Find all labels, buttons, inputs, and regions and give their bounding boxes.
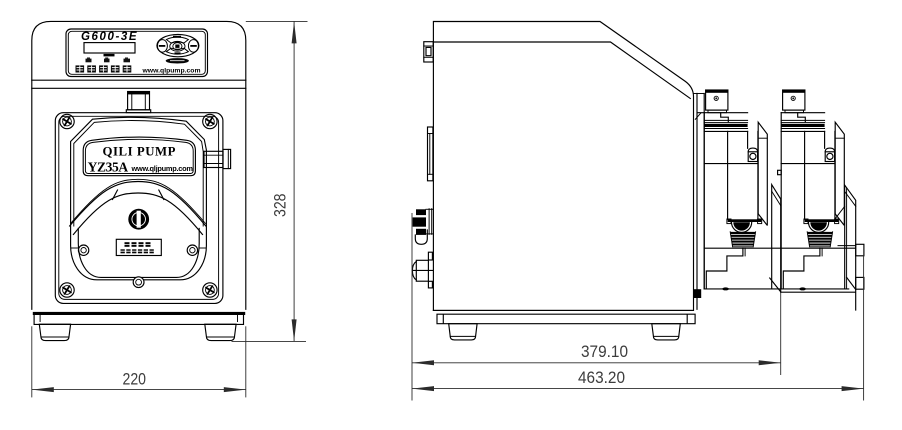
svg-text:G600-3E: G600-3E: [81, 31, 137, 43]
svg-text:QILI PUMP: QILI PUMP: [103, 145, 177, 159]
svg-text:www.qljpump.com: www.qljpump.com: [131, 164, 194, 173]
svg-text:463.20: 463.20: [578, 368, 625, 387]
svg-text:379.10: 379.10: [581, 342, 628, 361]
svg-text:328: 328: [271, 194, 290, 218]
svg-text:www.qlpump.com: www.qlpump.com: [142, 68, 201, 75]
svg-text:220: 220: [123, 369, 147, 388]
svg-text:YZ35A: YZ35A: [88, 159, 129, 174]
